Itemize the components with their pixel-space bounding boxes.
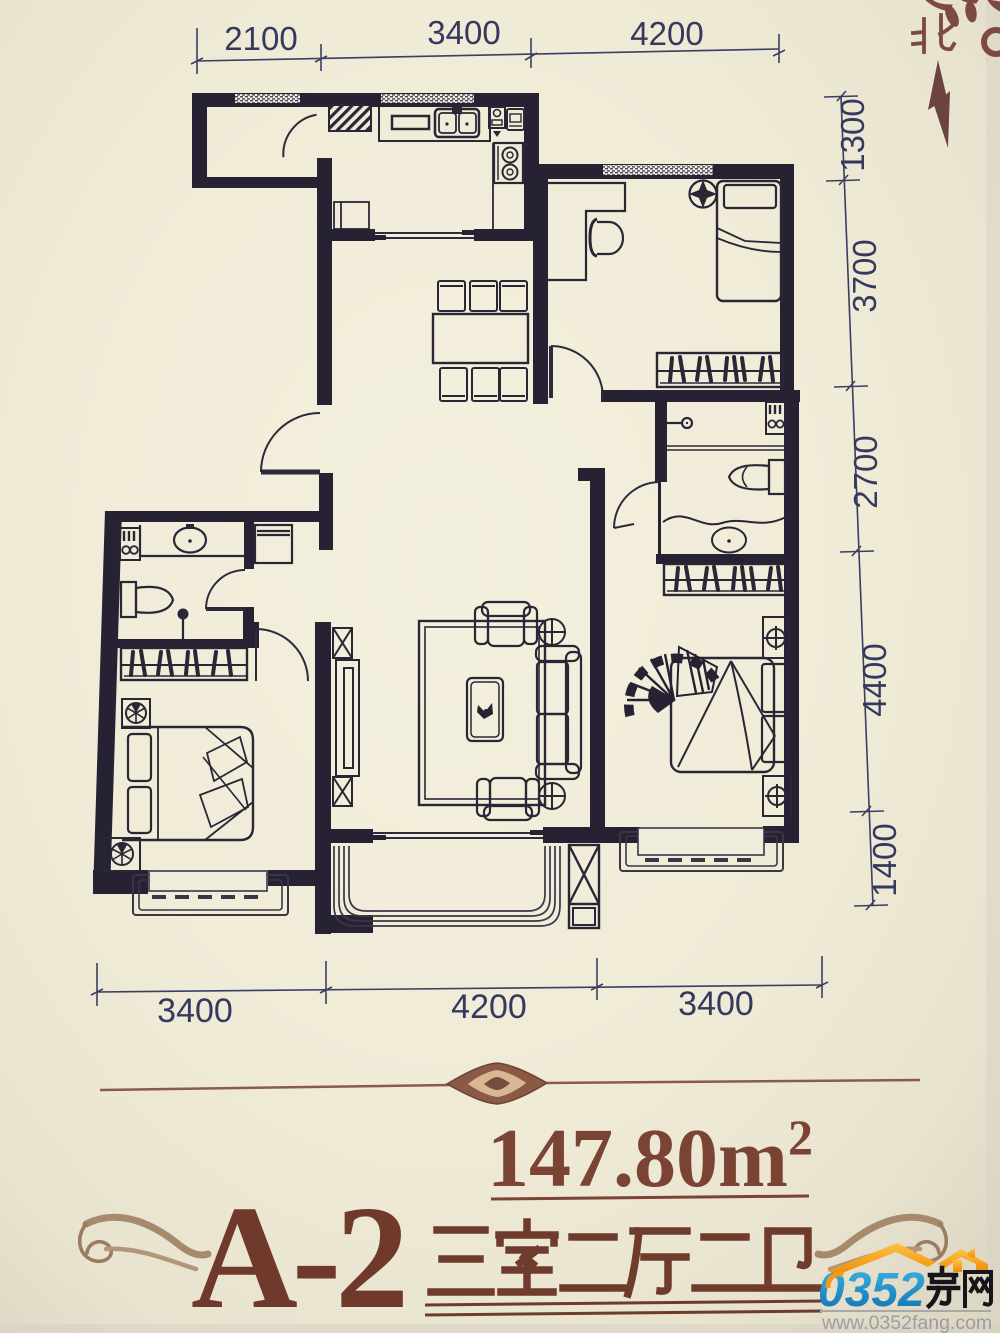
svg-text:4200: 4200 [451,988,527,1026]
svg-text:3400: 3400 [678,985,754,1023]
svg-text:4400: 4400 [856,643,893,716]
svg-text:3400: 3400 [157,992,233,1030]
svg-text:3400: 3400 [427,14,500,51]
svg-text:2700: 2700 [847,435,884,508]
svg-text:147.80m2: 147.80m2 [487,1109,813,1205]
svg-text:www.0352fang.com: www.0352fang.com [821,1312,992,1333]
svg-text:1400: 1400 [866,823,903,896]
svg-text:1300: 1300 [834,98,871,171]
svg-text:3700: 3700 [846,239,883,312]
svg-text:A-2: A-2 [191,1176,403,1333]
svg-text:4200: 4200 [630,15,703,52]
svg-text:2100: 2100 [224,20,297,57]
svg-text:0352: 0352 [818,1264,925,1317]
